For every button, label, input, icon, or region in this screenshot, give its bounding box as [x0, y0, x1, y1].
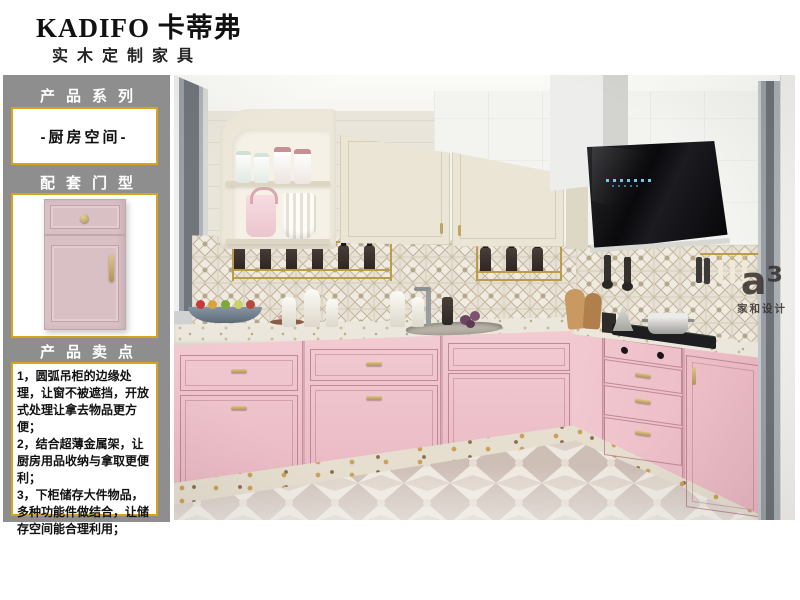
prop-bottle	[338, 245, 349, 271]
section-label-selling-points: 产品卖点	[3, 341, 170, 362]
prop-fruit	[234, 300, 243, 309]
watermark-caption: 家和设计	[730, 301, 794, 316]
prop-ladle	[624, 257, 631, 285]
designer-watermark: a³ 家和设计	[730, 261, 794, 316]
prop-canister	[294, 149, 311, 184]
door-handle	[109, 254, 114, 282]
door-knob	[80, 214, 89, 223]
selling-points-box: 1，圆弧吊柜的边缘处理，让窗不被遮挡，开放式处理让拿去物品更方便； 2，结合超薄…	[11, 362, 158, 516]
drawer-front	[310, 349, 438, 381]
rack-rail	[700, 253, 760, 255]
prop-utensil	[696, 257, 702, 283]
drawer-stack	[604, 337, 682, 472]
door-type-box	[11, 193, 158, 338]
door-lower-panel	[45, 240, 125, 328]
selling-point-3: 3，下柜储存大件物品，多种功能件做结合，让储存空间能合理利用；	[17, 487, 152, 538]
prop-utensil	[704, 258, 710, 284]
prop-vase	[282, 297, 296, 327]
brand-title: KADIFO 卡蒂弗	[36, 6, 242, 45]
prop-fruit	[196, 300, 205, 309]
sidebar: 产品系列 -厨房空间- 配套门型 产品卖点 1，圆弧吊柜的边缘处理，让窗不被遮挡…	[3, 75, 170, 522]
cabinet-handle	[692, 367, 696, 385]
prop-dark-bottle	[442, 297, 453, 325]
prop-cutting-board	[583, 292, 602, 329]
hood-led-display	[612, 185, 642, 187]
prop-fruit	[221, 300, 230, 309]
poster-page: KADIFO 卡蒂弗 实木定制家具 产品系列 -厨房空间- 配套门型 产品卖点 …	[0, 0, 800, 600]
cabinet-handle	[458, 225, 461, 236]
rack-post	[476, 245, 478, 281]
rack-post	[560, 245, 562, 281]
watermark-logo: a³	[730, 261, 794, 301]
selling-point-2: 2，结合超薄金属架，让厨房用品收纳与拿取更便利；	[17, 436, 152, 487]
cabinet-seam	[440, 327, 443, 457]
prop-vase	[326, 299, 338, 327]
rack-post	[390, 241, 392, 281]
rack-rail	[476, 271, 562, 273]
cabinet-seam	[302, 333, 305, 483]
prop-fruit	[208, 300, 217, 309]
prop-fluted-vase	[282, 193, 316, 239]
drawer-handle	[231, 369, 247, 373]
rack-rail	[232, 269, 392, 271]
brand-subtitle: 实木定制家具	[52, 42, 202, 66]
rounded-open-shelf	[220, 109, 336, 249]
series-value: -厨房空间-	[41, 126, 129, 147]
prop-vase	[304, 289, 320, 327]
series-box: -厨房空间-	[11, 107, 158, 165]
faucet	[426, 287, 431, 325]
prop-canister	[254, 153, 269, 183]
prop-bottle	[532, 247, 543, 273]
prop-vase	[412, 297, 424, 327]
gold-wall-rack-right	[476, 245, 562, 289]
section-label-door-type: 配套门型	[3, 172, 170, 193]
hood-led-display	[606, 179, 652, 182]
prop-pink-bucket	[246, 195, 276, 237]
shelf-board	[226, 239, 330, 244]
drawer-front	[180, 355, 298, 391]
prop-canister	[274, 147, 291, 184]
rack-rail	[232, 277, 392, 279]
drawer-handle	[635, 430, 651, 436]
tall-cabinet-door	[686, 355, 760, 517]
prop-vase	[390, 291, 405, 327]
prop-pot	[648, 313, 688, 334]
drawer-handle	[635, 398, 651, 404]
drawer-hole-pull	[657, 351, 664, 359]
prop-onion	[466, 320, 475, 328]
selling-point-1: 1，圆弧吊柜的边缘处理，让窗不被遮挡，开放式处理让拿去物品更方便；	[17, 368, 152, 436]
prop-bottle	[364, 245, 375, 271]
drawer-front	[448, 343, 570, 371]
kitchen-render-photo: a³ 家和设计	[174, 75, 795, 520]
drawer-handle	[366, 362, 382, 366]
drawer-hole-pull	[621, 346, 628, 354]
door-drawer-front	[45, 200, 125, 236]
drawer-handle	[366, 396, 382, 400]
prop-bottle	[480, 247, 491, 273]
section-label-product-series: 产品系列	[3, 85, 170, 106]
door-panel-graphic	[44, 199, 126, 330]
drawer-handle	[635, 372, 651, 378]
prop-fruit	[246, 300, 255, 309]
rack-rail	[476, 279, 562, 281]
cabinet-handle	[440, 223, 443, 234]
prop-bottle	[506, 247, 517, 273]
prop-canister	[236, 151, 251, 183]
drawer-handle	[231, 406, 247, 410]
prop-ladle	[604, 255, 611, 283]
prop-knife	[718, 260, 723, 284]
